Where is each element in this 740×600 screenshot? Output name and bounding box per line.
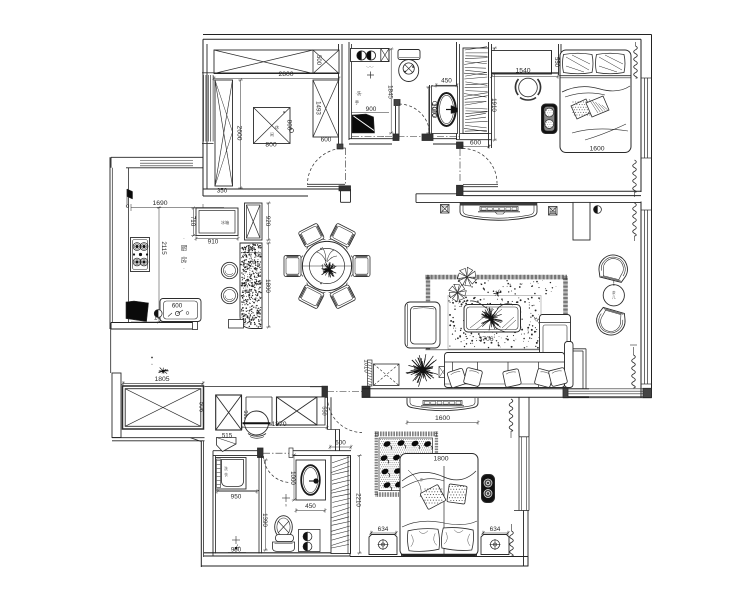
svg-text:550: 550: [321, 406, 327, 415]
svg-text:2210: 2210: [355, 493, 362, 507]
svg-text:634: 634: [490, 526, 501, 533]
svg-text:450: 450: [305, 503, 316, 510]
svg-text:◡◡: ◡◡: [366, 63, 374, 68]
svg-text:手: 手: [355, 99, 360, 106]
svg-text:1600: 1600: [435, 415, 450, 422]
svg-text:1540: 1540: [515, 68, 530, 75]
svg-text:350: 350: [217, 188, 228, 195]
svg-text:1870: 1870: [271, 421, 286, 428]
svg-text:600: 600: [248, 260, 256, 265]
svg-text:1845: 1845: [387, 85, 394, 99]
svg-text:1805: 1805: [154, 376, 169, 383]
svg-text:2800: 2800: [278, 71, 293, 78]
svg-text:600: 600: [335, 440, 346, 447]
svg-text:1910: 1910: [490, 98, 497, 112]
svg-text:床: 床: [420, 477, 424, 482]
svg-text:920: 920: [264, 216, 271, 227]
svg-text:几: 几: [612, 296, 616, 300]
svg-text:冰箱: 冰箱: [221, 219, 229, 226]
svg-text:800: 800: [286, 120, 293, 131]
svg-text:450: 450: [441, 78, 452, 85]
svg-text:1690: 1690: [152, 200, 167, 207]
svg-text:厨: 厨: [181, 244, 188, 252]
svg-text:1000: 1000: [289, 471, 296, 485]
svg-text:800: 800: [265, 142, 277, 149]
svg-text:3706: 3706: [478, 336, 493, 343]
svg-text:茶: 茶: [612, 290, 616, 295]
svg-text:506: 506: [198, 402, 205, 413]
svg-text:2600: 2600: [236, 125, 243, 140]
svg-text:1800: 1800: [433, 456, 448, 463]
svg-text:950: 950: [231, 494, 242, 501]
svg-text:550: 550: [553, 57, 559, 68]
svg-text:600: 600: [321, 137, 332, 144]
svg-text:洗: 洗: [224, 466, 228, 471]
svg-text:॰: ॰: [151, 362, 153, 367]
svg-text:600: 600: [470, 140, 482, 147]
svg-text:1600: 1600: [589, 146, 604, 153]
svg-text:房: 房: [181, 255, 188, 264]
svg-text:900: 900: [366, 106, 377, 113]
svg-text:710: 710: [189, 216, 196, 227]
svg-text:闲: 闲: [270, 131, 274, 138]
svg-text:1493: 1493: [315, 101, 322, 115]
svg-text:600: 600: [248, 246, 256, 251]
svg-text:2115: 2115: [160, 241, 167, 255]
svg-text:910: 910: [208, 239, 219, 246]
svg-text:1800: 1800: [264, 279, 271, 293]
svg-text:500: 500: [315, 55, 321, 66]
svg-text:♆: ♆: [284, 503, 288, 509]
svg-text:600: 600: [172, 303, 183, 310]
svg-text:1390: 1390: [261, 513, 268, 527]
svg-text:衣: 衣: [224, 472, 228, 477]
svg-text:634: 634: [378, 526, 389, 533]
svg-text:·洗·: ·洗·: [355, 90, 362, 97]
